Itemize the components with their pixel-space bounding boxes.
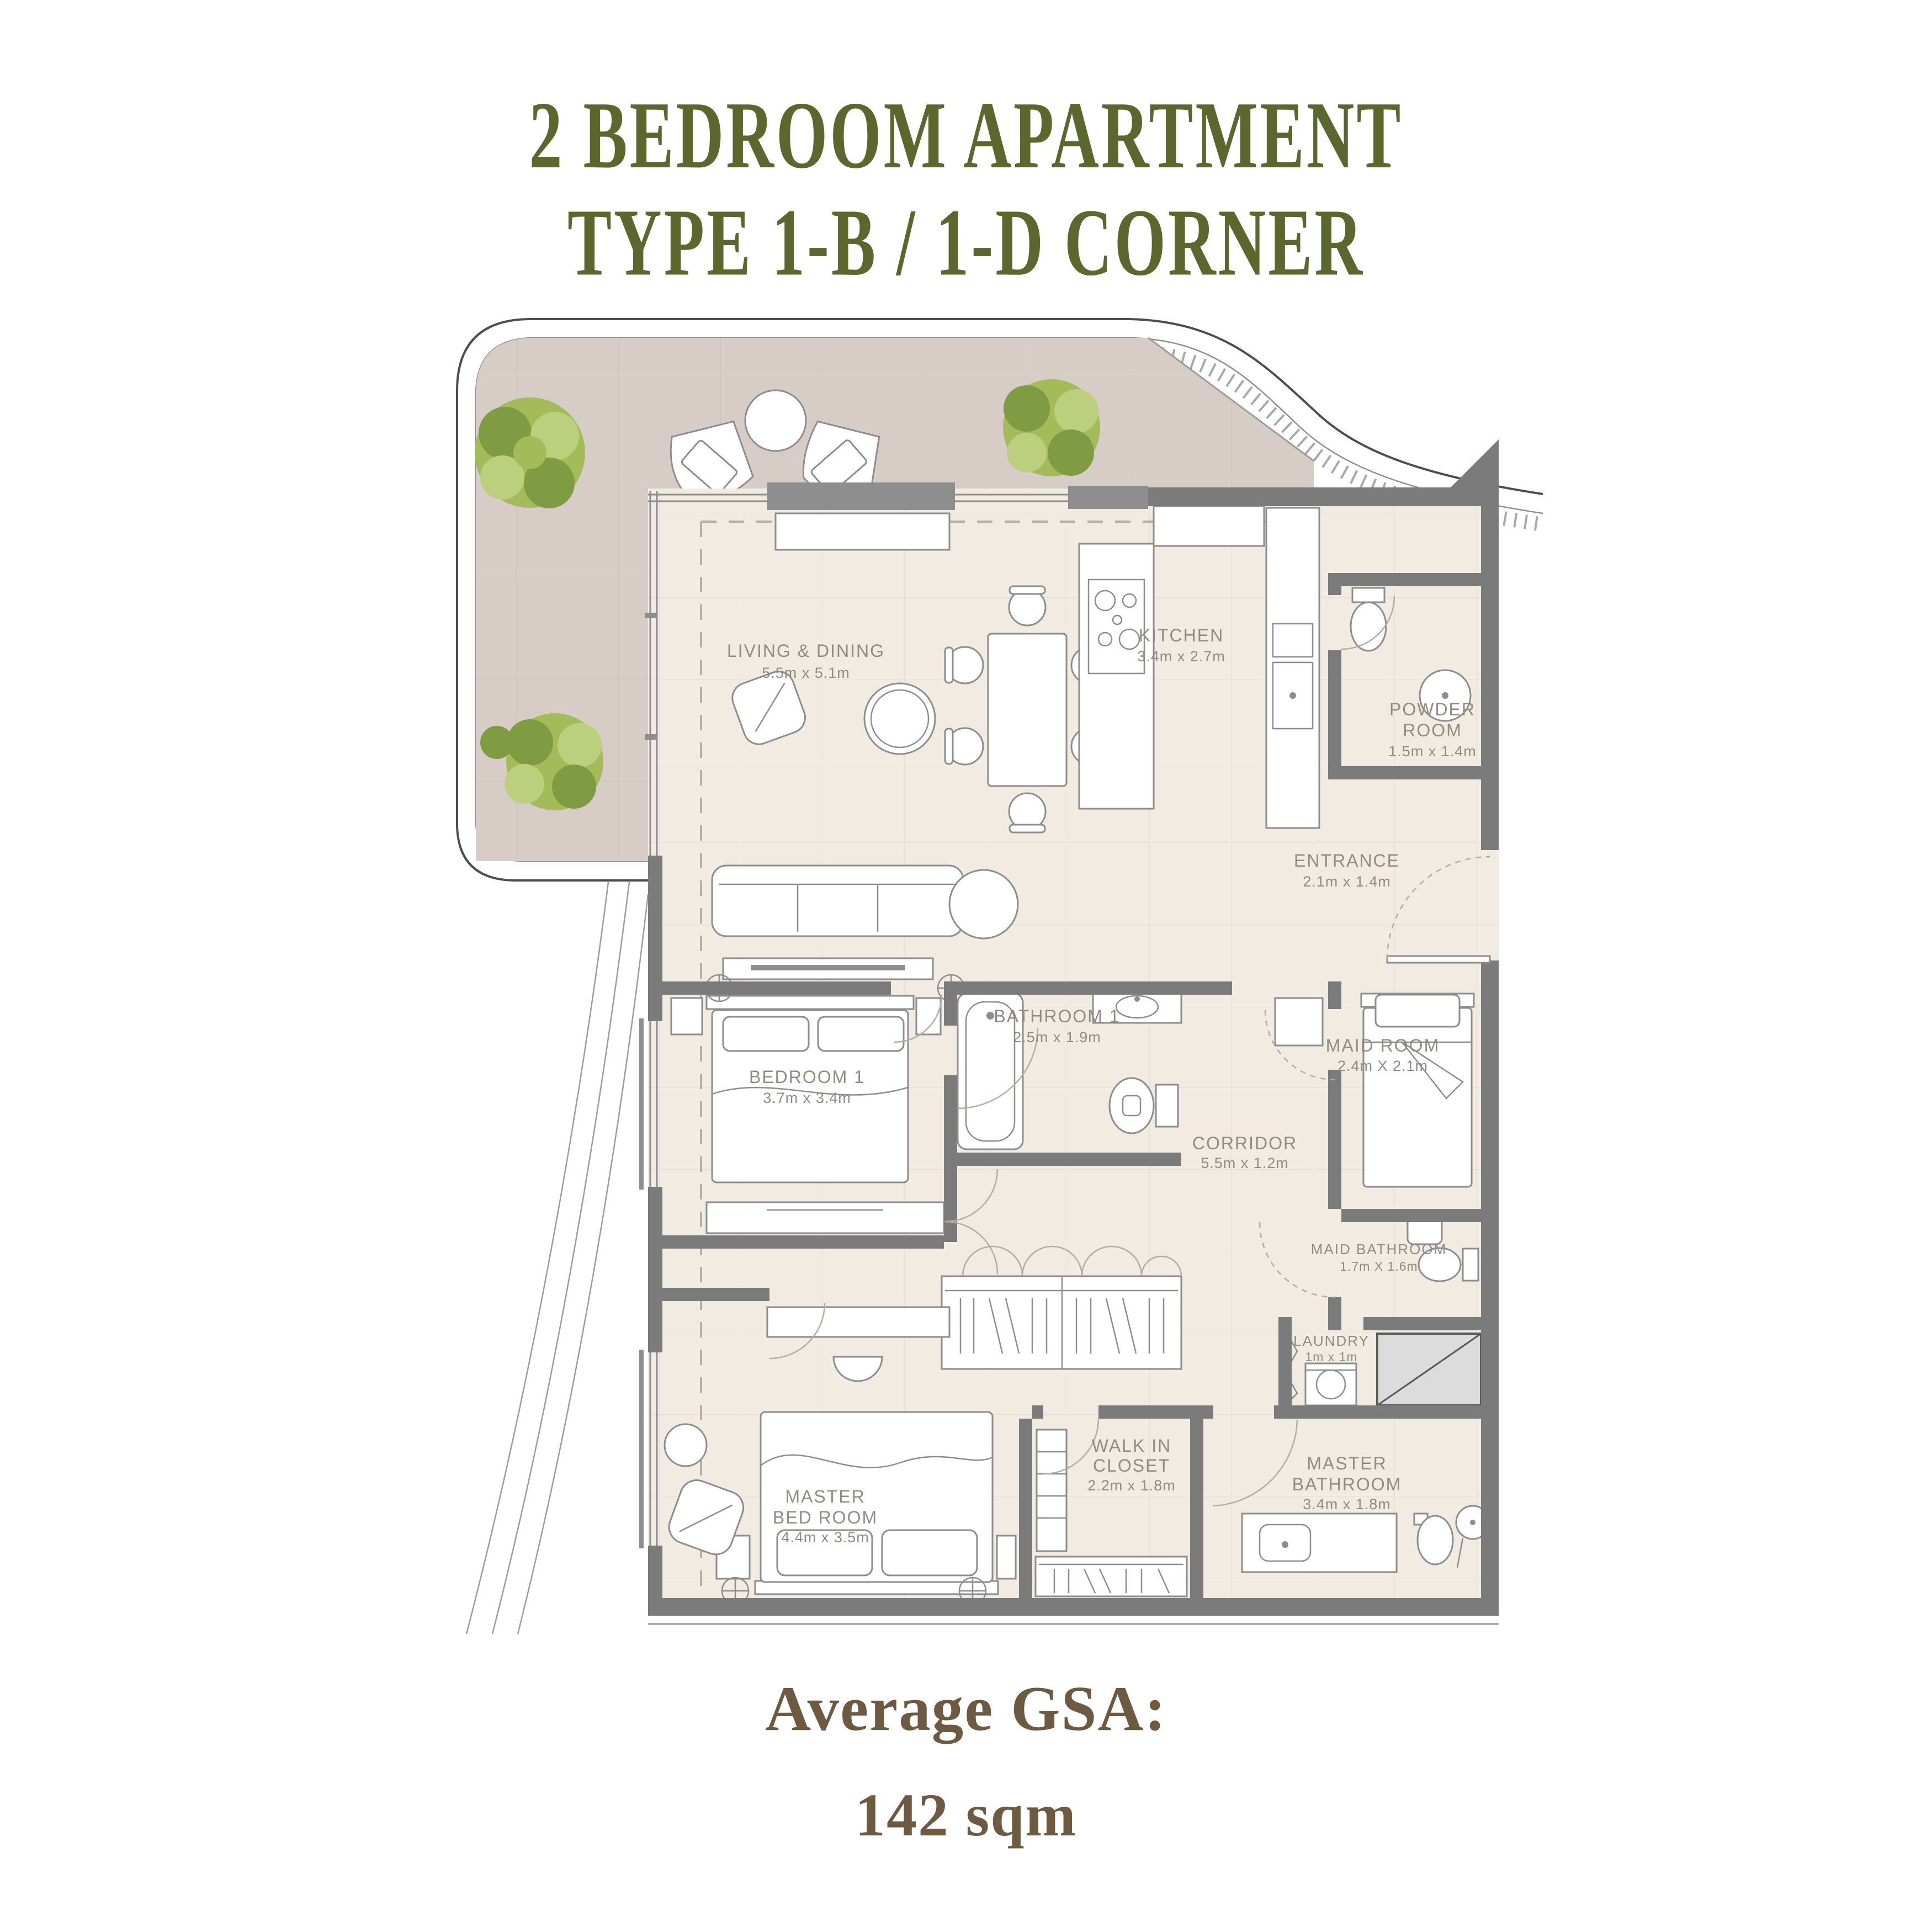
average-gsa-label: Average GSA: bbox=[0, 1673, 1932, 1745]
room-label-powder-room: POWDER bbox=[1389, 699, 1475, 719]
room-dims-maid-room: 2.4m X 2.1m bbox=[1337, 1058, 1428, 1074]
room-label-master-bed-room: BED ROOM bbox=[773, 1508, 878, 1527]
bed-icon bbox=[707, 996, 914, 1182]
room-label-entrance: ENTRANCE bbox=[1294, 851, 1400, 871]
wardrobe-icon bbox=[1275, 998, 1323, 1045]
room-label-laundry: LAUNDRY bbox=[1293, 1333, 1370, 1349]
room-label-corridor: CORRIDOR bbox=[1192, 1133, 1297, 1153]
room-label-master-bathroom: BATHROOM bbox=[1292, 1474, 1402, 1494]
vanity-icon bbox=[1242, 1514, 1397, 1572]
room-label-master-bed-room: MASTER bbox=[785, 1487, 865, 1506]
room-label-walk-in-closet: CLOSET bbox=[1093, 1456, 1170, 1475]
tree-icon bbox=[475, 397, 585, 508]
average-gsa-value: 142 sqm bbox=[0, 1780, 1932, 1850]
room-label-bathroom-1: BATHROOM 1 bbox=[994, 1006, 1120, 1026]
room-label-maid-bathroom: MAID BATHROOM bbox=[1311, 1241, 1447, 1257]
room-dims-master-bed-room: 4.4m x 3.5m bbox=[781, 1529, 869, 1546]
room-label-master-bathroom: MASTER bbox=[1307, 1453, 1387, 1473]
room-dims-laundry: 1m x 1m bbox=[1305, 1350, 1357, 1364]
dining-table-icon bbox=[988, 634, 1066, 786]
coffee-table-icon bbox=[864, 683, 935, 754]
room-dims-walk-in-closet: 2.2m x 1.8m bbox=[1087, 1477, 1176, 1494]
room-dims-bedroom-1: 3.7m x 3.4m bbox=[763, 1090, 851, 1106]
room-label-maid-room: MAID ROOM bbox=[1326, 1036, 1440, 1055]
room-label-bedroom-1: BEDROOM 1 bbox=[749, 1067, 865, 1087]
room-dims-maid-bathroom: 1.7m X 1.6m bbox=[1340, 1259, 1418, 1273]
floor-plan: LIVING & DINING 5.5m x 5.1m KITCHEN 3.4m… bbox=[414, 270, 1546, 1634]
room-dims-kitchen: 3.4m x 2.7m bbox=[1137, 648, 1225, 665]
tv-console-icon bbox=[723, 958, 933, 979]
kitchen-island-icon bbox=[1079, 544, 1154, 809]
sofa-icon bbox=[712, 866, 1018, 938]
shaft bbox=[1377, 1334, 1481, 1405]
page: 2 BEDROOM APARTMENT TYPE 1-B / 1-D CORNE… bbox=[0, 0, 1932, 1932]
side-table-icon bbox=[665, 1424, 707, 1466]
dresser-icon bbox=[707, 1202, 944, 1233]
tree-icon bbox=[1003, 379, 1100, 476]
facade-arcs bbox=[466, 882, 648, 1634]
bed-icon bbox=[1361, 994, 1474, 1187]
room-label-living-dining: LIVING & DINING bbox=[727, 641, 885, 661]
toilet-icon bbox=[1110, 1078, 1178, 1133]
room-dims-master-bathroom: 3.4m x 1.8m bbox=[1303, 1496, 1391, 1512]
room-label-powder-room: ROOM bbox=[1403, 720, 1462, 740]
room-label-walk-in-closet: WALK IN bbox=[1092, 1436, 1171, 1456]
washer-icon bbox=[1305, 1363, 1356, 1405]
room-dims-entrance: 2.1m x 1.4m bbox=[1303, 873, 1391, 890]
room-dims-corridor: 5.5m x 1.2m bbox=[1201, 1155, 1289, 1171]
room-dims-bathroom-1: 2.5m x 1.9m bbox=[1013, 1029, 1101, 1045]
title-line-1: 2 BEDROOM APARTMENT bbox=[0, 82, 1932, 189]
sideboard-icon bbox=[776, 513, 949, 550]
room-label-kitchen: KITCHEN bbox=[1139, 625, 1224, 645]
page-title: 2 BEDROOM APARTMENT TYPE 1-B / 1-D CORNE… bbox=[0, 82, 1932, 296]
room-dims-living-dining: 5.5m x 5.1m bbox=[762, 665, 850, 681]
room-dims-powder-room: 1.5m x 1.4m bbox=[1388, 743, 1477, 760]
